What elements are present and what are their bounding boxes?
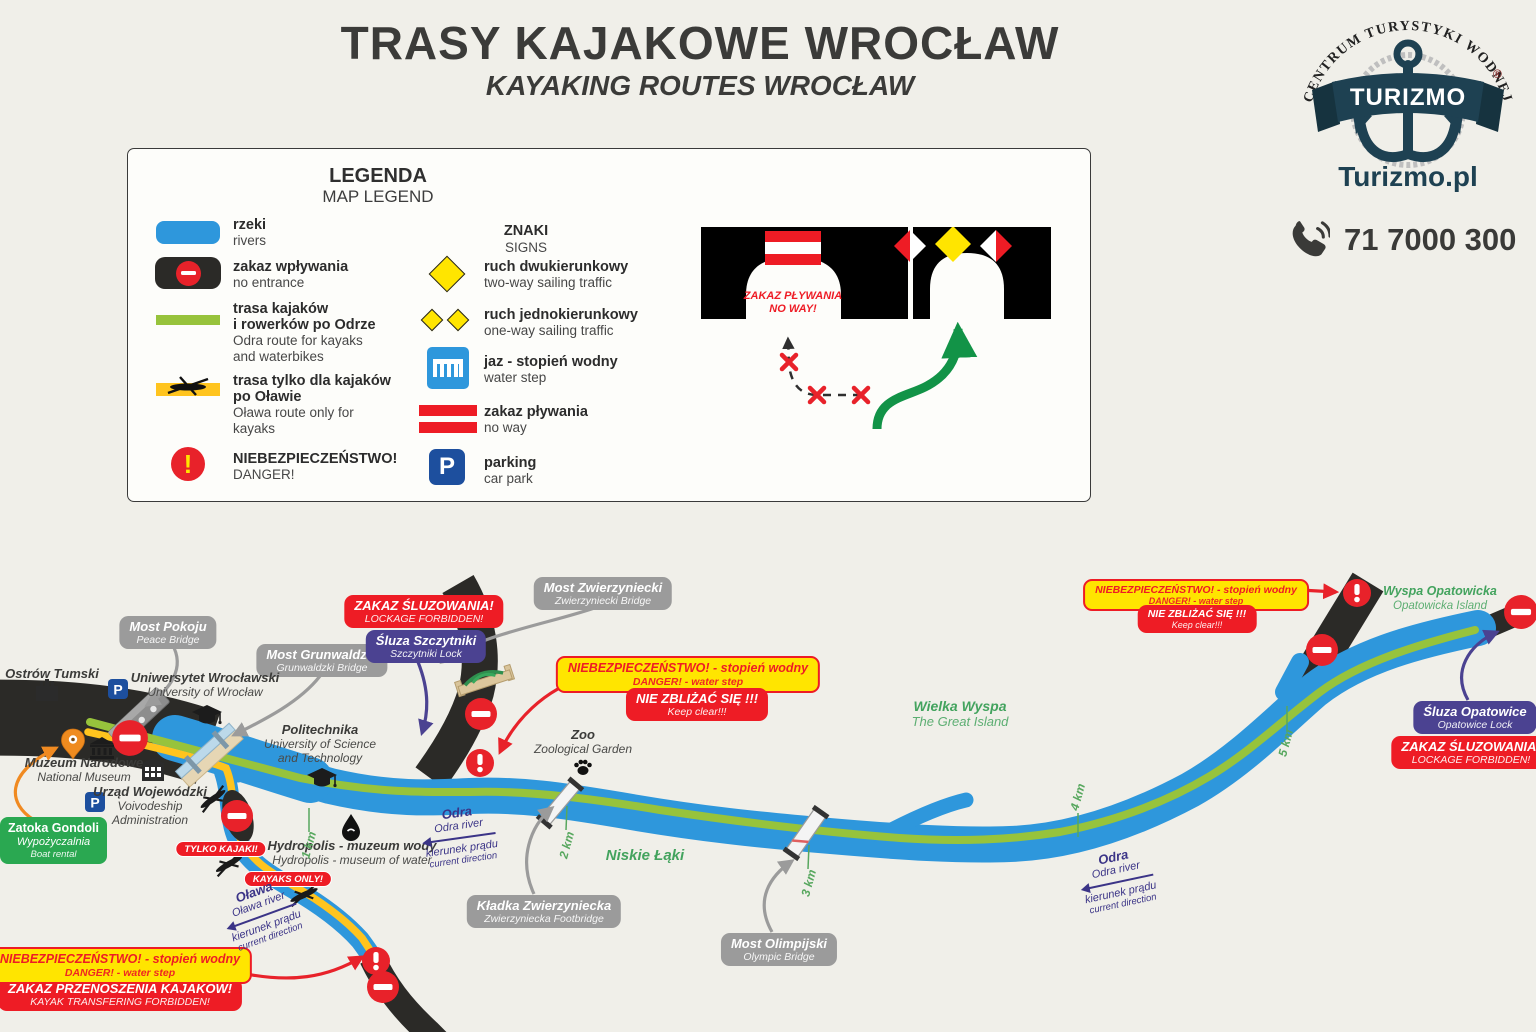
legend-item-rivers: rzeki rivers — [233, 217, 266, 249]
allowed-path-green-arrow — [877, 329, 958, 429]
legend-item-olawa-route: trasa tylko dla kajaków po Oławie Oława … — [233, 373, 391, 437]
no-way-board — [765, 231, 821, 265]
label-pl: Kładka Zwierzyniecka — [477, 898, 611, 913]
legend-item-two-way: ruch dwukierunkowy two-way sailing traff… — [484, 259, 628, 291]
legend-olawa-sub2: kayaks — [233, 421, 391, 437]
label-pl: Most Olimpijski — [731, 936, 827, 951]
place-hydropolis: Hydropolis - muzeum wody Hydropolis - mu… — [267, 838, 436, 867]
paw-icon — [574, 760, 592, 775]
no-way-sign-icon — [419, 422, 477, 433]
logo-site-text: Turizmo.pl — [1338, 161, 1477, 192]
no-entry-right-channel — [1306, 634, 1338, 666]
place-muzeum-narodowe: Muzeum Narodowe National Museum — [25, 755, 143, 784]
phone-icon — [1288, 220, 1330, 260]
label-line3: Boat rental — [8, 849, 99, 860]
label-en: Keep clear!!! — [1148, 620, 1247, 630]
legend-item-danger: NIEBEZPIECZEŃSTWO! DANGER! — [233, 451, 397, 483]
label-line1: Zatoka Gondoli — [8, 821, 99, 836]
legend-signs-subheader: SIGNS — [505, 240, 547, 256]
label-lockage-forbidden-szczytniki: ZAKAZ ŚLUZOWANIA! LOCKAGE FORBIDDEN! — [344, 595, 503, 628]
label-pl: ZAKAZ ŚLUZOWANIA! — [1401, 739, 1536, 754]
place-pl: Uniwersytet Wrocławski — [131, 670, 280, 685]
direction-odra-center: Odra Odra river kierunek prądu current d… — [420, 801, 500, 871]
no-entry-icon — [176, 261, 201, 286]
label-en: Opatowice Lock — [1423, 719, 1526, 731]
place-en: Hydropolis - museum of water — [267, 853, 436, 867]
legend-noway-title: zakaz pływania — [484, 404, 588, 420]
panel-no-way-pl: ZAKAZ PŁYWANIA — [743, 290, 842, 302]
area-wyspa-opatowicka: Wyspa Opatowicka Opatowicka Island — [1383, 583, 1497, 614]
arrow-most-olimpijski — [764, 861, 792, 932]
parking-sign-icon: P — [429, 449, 465, 485]
legend-noent-sub: no entrance — [233, 275, 348, 291]
area-en: Opatowicka Island — [1383, 599, 1497, 614]
legend-signs-header: ZNAKI — [504, 223, 548, 239]
label-line2: Wypożyczalnia — [8, 836, 99, 849]
bridge-signs-illustration: ZAKAZ PŁYWANIA NO WAY! — [701, 227, 1053, 437]
page-subtitle: KAYAKING ROUTES WROCŁAW — [486, 70, 914, 102]
place-en: Zoological Garden — [534, 742, 632, 756]
legend-oneway-title: ruch jednokierunkowy — [484, 307, 638, 323]
label-zatoka-gondoli: Zatoka Gondoli Wypożyczalnia Boat rental — [0, 817, 107, 864]
label-pl: NIEBEZPIECZEŃSTWO! - stopień wodny — [1095, 584, 1297, 596]
legend-danger-sub: DANGER! — [233, 467, 397, 483]
label-keep-clear-right: NIE ZBLIŻAĆ SIĘ !!! Keep clear!!! — [1138, 605, 1257, 633]
parking-letter: P — [113, 682, 122, 698]
weir-sign-icon — [427, 347, 469, 389]
label-en: Zwierzyniecka Footbridge — [477, 913, 611, 925]
legend-item-one-way: ruch jednokierunkowy one-way sailing tra… — [484, 307, 638, 339]
one-way-sign-icon — [421, 309, 444, 332]
legend-item-weir: jaz - stopień wodny water step — [484, 354, 618, 386]
label-pl: ZAKAZ ŚLUZOWANIA! — [354, 598, 493, 613]
legend-odra-title2: i rowerków po Odrze — [233, 317, 376, 333]
no-entry-left — [112, 720, 148, 756]
label-en: KAYAK TRANSFERING FORBIDDEN! — [8, 996, 232, 1008]
area-pl: Wielka Wyspa — [912, 698, 1009, 714]
legend-item-parking: parking car park — [484, 455, 536, 487]
label-lockage-forbidden-opatowice: ZAKAZ ŚLUZOWANIA! LOCKAGE FORBIDDEN! — [1391, 736, 1536, 769]
label-most-olimpijski: Most Olimpijski Olympic Bridge — [721, 933, 837, 966]
place-name: Ostrów Tumski — [5, 666, 99, 681]
place-ostrow-tumski: Ostrów Tumski — [5, 666, 99, 681]
label-pl: NIEBEZPIECZEŃSTWO! - stopień wodny — [568, 661, 808, 676]
kayak-map-poster: P P TRASY KAJAKOWE — [0, 0, 1536, 1032]
legend-odra-route-swatch — [156, 315, 220, 325]
legend-oneway-sub: one-way sailing traffic — [484, 323, 638, 339]
turizmo-logo: CENTRUM TURYSTYKI WODNEJ TURIZMO ® Turiz… — [1296, 2, 1520, 202]
label-en: DANGER! - water step — [0, 967, 240, 979]
place-pl: Zoo — [534, 727, 632, 742]
rivers — [175, 628, 1478, 960]
no-entry-szczytniki — [465, 698, 497, 730]
label-sluza-szczytniki: Śluza Szczytniki Szczytniki Lock — [366, 630, 486, 663]
label-en: Szczytniki Lock — [376, 648, 476, 660]
logo-banner-text: TURIZMO — [1350, 84, 1466, 111]
legend-weir-sub: water step — [484, 370, 618, 386]
kayak-crossed-icon — [156, 377, 220, 390]
legend-twoway-sub: two-way sailing traffic — [484, 275, 628, 291]
area-pl: Niskie Łąki — [606, 848, 684, 864]
panel-no-way-en: NO WAY! — [769, 303, 817, 315]
place-en: National Museum — [25, 770, 143, 784]
legend-olawa-route-swatch — [156, 383, 220, 396]
legend-weir-title: jaz - stopień wodny — [484, 354, 618, 370]
area-en: The Great Island — [912, 714, 1009, 729]
area-niskie-laki: Niskie Łąki — [606, 848, 684, 864]
place-pl: Politechnika — [264, 722, 376, 737]
registered-mark: ® — [1493, 67, 1502, 81]
exclamation-glyph: ! — [184, 449, 193, 480]
place-en1: Voivodeship — [93, 799, 207, 813]
place-pl: Hydropolis - muzeum wody — [267, 838, 436, 853]
legend-twoway-title: ruch dwukierunkowy — [484, 259, 628, 275]
legend-odra-title1: trasa kajaków — [233, 301, 376, 317]
one-way-sign-icon — [447, 309, 470, 332]
danger-opatowice — [1343, 579, 1371, 607]
legend-title: LEGENDA — [329, 165, 427, 188]
label-pl: NIE ZBLIŻAĆ SIĘ !!! — [1148, 608, 1247, 620]
no-entry-olawa-exit — [367, 971, 399, 1003]
label-en: Olympic Bridge — [731, 951, 827, 963]
label-pl: Most Grunwaldzki — [266, 647, 377, 662]
label-most-pokoju: Most Pokoju Peace Bridge — [119, 616, 216, 649]
label-en: LOCKAGE FORBIDDEN! — [354, 613, 493, 625]
legend-noway-sub: no way — [484, 420, 588, 436]
legend-subtitle: MAP LEGEND — [322, 187, 433, 207]
phone-block: 71 7000 300 — [1288, 220, 1516, 260]
label-pl: NIE ZBLIŻAĆ SIĘ !!! — [636, 691, 758, 706]
legend-danger-icon: ! — [171, 447, 205, 481]
label-danger-water-step-olawa: NIEBEZPIECZEŃSTWO! - stopień wodny DANGE… — [0, 947, 252, 984]
area-pl: Wyspa Opatowicka — [1383, 583, 1497, 599]
legend-olawa-title1: trasa tylko dla kajaków — [233, 373, 391, 389]
label-pl: Most Zwierzyniecki — [544, 580, 662, 595]
legend-odra-sub2: and waterbikes — [233, 349, 376, 365]
danger-szczytniki — [466, 749, 494, 777]
label-pl: Most Pokoju — [129, 619, 206, 634]
label-pl: Śluza Opatowice — [1423, 704, 1526, 719]
parking-icon: P — [108, 679, 128, 699]
water-drop-icon — [342, 814, 360, 841]
place-urzad-wojewodzki: Urząd Wojewódzki Voivodeship Administrat… — [93, 784, 207, 827]
label-most-zwierzyniecki: Most Zwierzyniecki Zwierzyniecki Bridge — [534, 577, 672, 610]
label-en: Keep clear!!! — [636, 706, 758, 718]
danger-olawa — [362, 947, 390, 975]
label-kladka-zwierzyniecka: Kładka Zwierzyniecka Zwierzyniecka Footb… — [467, 895, 621, 928]
arrow-sluza-szczytniki — [418, 662, 427, 733]
label-sluza-opatowice: Śluza Opatowice Opatowice Lock — [1413, 701, 1536, 734]
legend-river-swatch — [156, 221, 220, 244]
legend-item-odra-route: trasa kajaków i rowerków po Odrze Odra r… — [233, 301, 376, 365]
no-entry-olawa — [221, 800, 253, 832]
label-pl: Śluza Szczytniki — [376, 633, 476, 648]
label-en: Grunwaldzki Bridge — [266, 662, 377, 674]
legend-noent-title: zakaz wpływania — [233, 259, 348, 275]
legend-olawa-title2: po Oławie — [233, 389, 391, 405]
label-en: DANGER! - water step — [568, 676, 808, 688]
label-en: Zwierzyniecki Bridge — [544, 595, 662, 607]
label-keep-clear-center: NIE ZBLIŻAĆ SIĘ !!! Keep clear!!! — [626, 688, 768, 721]
place-en1: University of Science — [264, 737, 376, 751]
legend-rivers-sub: rivers — [233, 233, 266, 249]
page-title: TRASY KAJAKOWE WROCŁAW — [341, 16, 1060, 70]
legend-item-no-way: zakaz pływania no way — [484, 404, 588, 436]
place-pl: Muzeum Narodowe — [25, 755, 143, 770]
label-en: Peace Bridge — [129, 634, 206, 646]
arch-allowed — [930, 253, 1004, 319]
pill-tylko-kajaki: TYLKO KAJAKI! — [175, 841, 266, 857]
legend-box: LEGENDA MAP LEGEND rzeki rivers zakaz wp… — [127, 148, 1091, 502]
place-en2: and Technology — [264, 751, 376, 765]
legend-danger-title: NIEBEZPIECZEŃSTWO! — [233, 451, 397, 467]
legend-no-entrance-swatch — [155, 257, 221, 289]
label-en: LOCKAGE FORBIDDEN! — [1401, 754, 1536, 766]
legend-parking-title: parking — [484, 455, 536, 471]
label-pl: NIEBEZPIECZEŃSTWO! - stopień wodny — [0, 952, 240, 967]
two-way-sign-icon — [429, 256, 466, 293]
place-politechnika: Politechnika University of Science and T… — [264, 722, 376, 765]
no-way-sign-icon — [419, 405, 477, 416]
parking-letter: P — [439, 453, 455, 481]
place-uniwersytet: Uniwersytet Wrocławski University of Wro… — [131, 670, 280, 699]
legend-olawa-sub1: Oława route only for — [233, 405, 391, 421]
legend-parking-sub: car park — [484, 471, 536, 487]
place-en: University of Wrocław — [131, 685, 280, 699]
area-wielka-wyspa: Wielka Wyspa The Great Island — [912, 698, 1009, 729]
legend-rivers-title: rzeki — [233, 217, 266, 233]
legend-odra-sub1: Odra route for kayaks — [233, 333, 376, 349]
legend-item-no-entrance: zakaz wpływania no entrance — [233, 259, 348, 291]
place-en2: Administration — [93, 813, 207, 827]
phone-number: 71 7000 300 — [1344, 222, 1516, 258]
place-zoo: Zoo Zoological Garden — [534, 727, 632, 756]
place-pl: Urząd Wojewódzki — [93, 784, 207, 799]
